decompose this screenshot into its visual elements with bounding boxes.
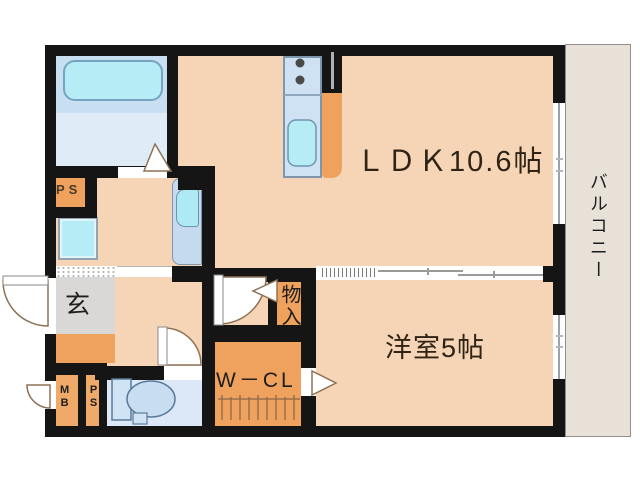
pipe-shaft-lower-label: PS [87,384,99,410]
ldk-label: ＬＤＫ10.6帖 [356,147,544,177]
toilet-door-arc [164,328,201,365]
balcony-label: バルコニー [588,172,607,282]
meter-box-label: MB [58,384,70,410]
kitchen-sink [288,120,316,166]
room-door-arc [219,277,266,324]
meter-box-door-arc [27,385,50,408]
floorplan-canvas: ＬＤＫ10.6帖 洋室5帖 バルコニー 玄 物入 W－CL PS MB PS [0,0,640,480]
bathroom-folding-door [144,144,171,171]
entrance-door-leaf [3,276,48,285]
toilet-control [133,413,147,424]
entrance-label: 玄 [65,292,90,318]
pipe-shaft-upper-label: PS [56,183,81,197]
range-hood-bar [331,52,334,89]
toilet-bowl [127,381,175,417]
walk-in-closet-label: W－CL [216,370,296,392]
western-room-label: 洋室5帖 [385,334,485,362]
stove-burner [296,59,305,68]
toilet-door-leaf [158,327,167,365]
entrance-door-arc [3,281,48,326]
room-door-leaf [214,275,223,325]
hanger-rail [218,395,300,420]
storage-label: 物入 [278,284,299,328]
closet-door-arrow [312,371,336,395]
stove-burner [296,76,305,85]
